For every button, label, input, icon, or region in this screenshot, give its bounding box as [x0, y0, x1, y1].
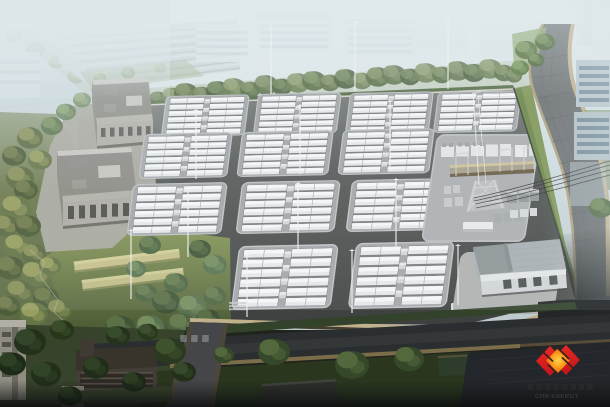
svg-text:CHN ENERGY: CHN ENERGY — [535, 394, 579, 400]
